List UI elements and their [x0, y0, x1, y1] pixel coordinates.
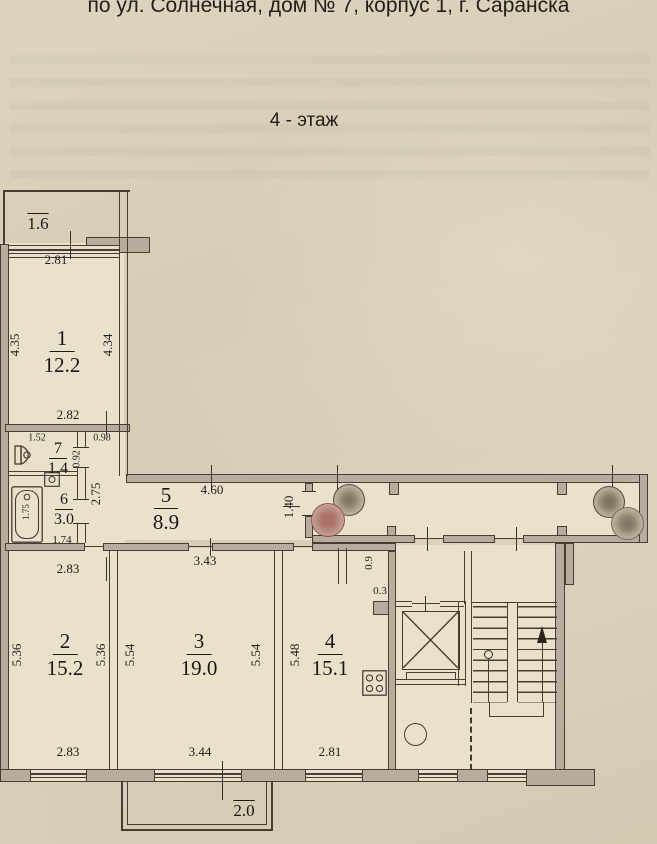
stove-icon — [362, 670, 387, 696]
dim-label: 0.98 — [93, 433, 111, 444]
room2-label: 215.2 — [47, 631, 84, 679]
stamp-circle — [611, 507, 644, 540]
dim-label: 5.54 — [122, 644, 138, 667]
dim-label: 5.36 — [93, 644, 109, 667]
dim-tick — [222, 761, 223, 800]
dim-label: 2.75 — [88, 483, 104, 506]
exterior-bottom-wall — [457, 769, 488, 782]
bath-right-wall — [77, 468, 86, 500]
pilaster — [387, 526, 396, 536]
pilaster — [557, 526, 567, 536]
room4-right-wall — [388, 551, 396, 773]
duct-stub — [373, 601, 389, 615]
door-jamb — [73, 523, 89, 524]
door-jamb — [73, 499, 89, 500]
room7-label: 71.4 — [48, 441, 68, 477]
door-threshold — [189, 546, 212, 547]
stairs-divider — [507, 602, 518, 702]
dim-label: 0.9 — [363, 556, 375, 570]
garbage-chute-icon — [404, 723, 427, 746]
balcony-left-wall — [3, 190, 5, 247]
stair-walkline — [542, 642, 543, 702]
room2-window — [31, 769, 86, 782]
dim-label: 5.36 — [9, 644, 25, 667]
room3-label: 319.0 — [181, 631, 218, 679]
door-threshold — [294, 546, 312, 547]
pilaster — [557, 482, 567, 495]
dim-tick — [70, 231, 71, 259]
door-jamb — [73, 447, 89, 448]
entrance-slab — [526, 769, 595, 786]
dim-tick — [516, 527, 517, 551]
dim-label: 0.92 — [72, 450, 83, 468]
dim-label: 5.48 — [287, 644, 303, 667]
lobby-window — [419, 769, 457, 782]
elevator-wall — [396, 601, 412, 607]
hallway-floor — [84, 476, 312, 540]
stairs-icon — [518, 606, 557, 703]
dim-tick — [106, 411, 107, 435]
dim-label: 1.52 — [28, 433, 46, 444]
dim-label: 2.83 — [57, 744, 80, 760]
partition-vestibules — [464, 551, 472, 604]
dim-label: 2.81 — [45, 252, 68, 268]
dim-tick — [106, 557, 107, 581]
room1-right-wall — [119, 192, 128, 476]
corridor-bottom-wall — [443, 535, 495, 543]
bleed-through-texture — [10, 55, 650, 185]
band-top-wall — [5, 543, 85, 551]
dim-label: 2.81 — [319, 744, 342, 760]
bath-right-wall — [77, 524, 86, 543]
dim-label: 1.74 — [52, 534, 71, 546]
band-top-wall — [103, 543, 189, 551]
dim-label: 0.3 — [373, 585, 387, 597]
dim-tick — [425, 596, 426, 612]
dim-label: 5.54 — [248, 644, 264, 667]
bottom-balcony-area-label: 2.0 — [233, 801, 254, 821]
balcony-top-wall — [3, 190, 130, 192]
door-jamb — [302, 491, 316, 492]
door-threshold — [495, 538, 523, 539]
exterior-bottom-wall — [0, 769, 31, 782]
pilaster — [389, 482, 399, 495]
exterior-bottom-wall — [362, 769, 419, 782]
dim-label: 4.60 — [201, 482, 224, 498]
stair-walkline — [488, 659, 489, 702]
dim-tick — [337, 465, 338, 490]
toilet-icon — [14, 443, 44, 467]
dim-label: 2.82 — [57, 407, 80, 423]
entrance-boundary-dashed-line — [470, 708, 472, 770]
dim-label: 4.35 — [7, 334, 23, 357]
dim-label: 3.44 — [189, 744, 212, 760]
dim-label: 3.43 — [194, 553, 217, 569]
stamp-circle-red — [311, 503, 345, 537]
dim-tick — [427, 527, 428, 551]
stair-direction-arrow — [537, 626, 547, 643]
stair-walkline-start — [484, 650, 493, 659]
band-top-wall — [212, 543, 294, 551]
elevator-counterweight — [406, 672, 456, 680]
band-top-wall — [312, 543, 396, 551]
niche-partition — [338, 548, 347, 584]
door-threshold — [415, 538, 443, 539]
dim-label: 1.40 — [281, 496, 297, 519]
door-threshold — [85, 546, 103, 547]
room4-window — [306, 769, 362, 782]
elevator-icon — [402, 611, 460, 670]
exterior-right-bump — [565, 543, 574, 585]
partition-room2-room3 — [109, 551, 118, 770]
room6-label: 63.0 — [54, 492, 74, 528]
stairs-landing — [489, 702, 544, 717]
wc-right-wall — [77, 432, 86, 448]
room4-label: 415.1 — [312, 631, 349, 679]
room1-label: 112.2 — [44, 328, 81, 376]
stairwell-window — [488, 769, 526, 782]
exterior-left-wall — [0, 244, 9, 773]
scanned-floor-plan-page: по ул. Солнечная, дом № 7, корпус 1, г. … — [0, 0, 657, 844]
dim-label: 1.75 — [21, 504, 31, 520]
room5-label: 58.9 — [153, 485, 179, 533]
dim-label: 2.83 — [57, 561, 80, 577]
top-balcony-area-label: 1.6 — [27, 214, 48, 234]
room1-bottom-wall — [5, 424, 130, 432]
dim-label: 4.34 — [100, 334, 116, 357]
partition-room3-room4 — [274, 551, 283, 770]
address-line: по ул. Солнечная, дом № 7, корпус 1, г. … — [0, 0, 657, 18]
